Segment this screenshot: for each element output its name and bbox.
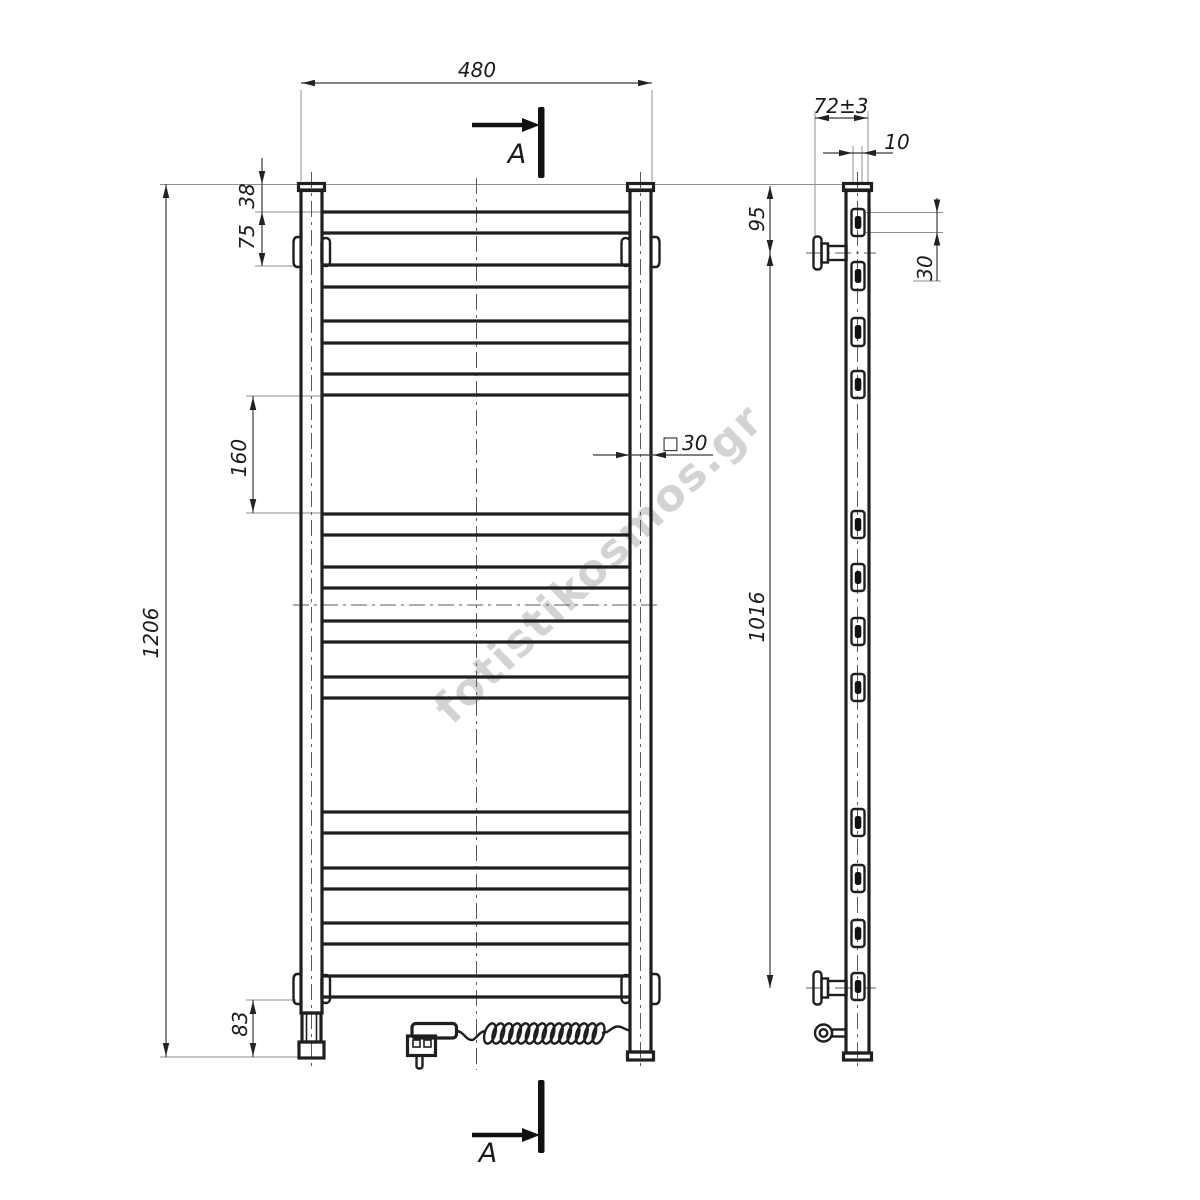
dim-95-label: 95: [747, 200, 767, 238]
section-label-bottom: A: [471, 1138, 505, 1168]
rung-slot-core: [855, 269, 862, 283]
front-view: [294, 184, 660, 1061]
dim-10-label: 10: [879, 131, 915, 153]
dim-1016-label: 1016: [747, 587, 767, 647]
dim-38-label: 38: [237, 176, 257, 216]
rung-slot-core: [855, 216, 862, 229]
dim-30-side-label: 30: [915, 249, 935, 287]
power-cord: [408, 1022, 632, 1069]
rung-slot-core: [855, 872, 862, 885]
rung-slot-core: [855, 571, 862, 584]
technical-drawing-page: fotistikosmos.gr: [0, 0, 1200, 1200]
cord-coil: [482, 1022, 607, 1045]
wall-bracket-side: [814, 237, 847, 1005]
section-bar-top: [538, 107, 545, 178]
dim-83-label: 83: [230, 1004, 250, 1044]
cord-tail: [602, 1027, 631, 1034]
rung-slot-core: [855, 980, 862, 993]
rung-slot-core: [855, 681, 862, 694]
side-view: [814, 184, 872, 1061]
dim-72-label: 72±3: [804, 95, 878, 117]
dim-160-label: 160: [229, 433, 249, 483]
dim-width-label: 480: [450, 59, 504, 81]
towel-rail-drawing: [0, 0, 1200, 1200]
bracket-cap: [652, 237, 660, 267]
dim-height-label: 1206: [140, 605, 162, 661]
rung-slot-core: [855, 518, 862, 531]
rung-slot-core: [855, 325, 862, 339]
dim-75-label: 75: [237, 217, 257, 257]
heating-element-side: [815, 1025, 846, 1042]
rung-slot-core: [855, 927, 862, 940]
square-symbol: □: [662, 433, 679, 454]
extension-lines: [160, 90, 943, 1057]
dim-square30-label: □ 30: [662, 432, 707, 454]
rung-slot-core: [855, 625, 862, 638]
dimension-lines: [166, 83, 937, 1057]
section-bar-bottom: [538, 1080, 545, 1153]
cord-lead: [456, 1031, 486, 1040]
plug-pin: [417, 1056, 423, 1069]
rung-sections-side: [852, 209, 865, 1000]
bracket-cap: [652, 974, 660, 1004]
square30-value: 30: [682, 431, 707, 455]
rung-slot-core: [855, 378, 862, 391]
rung-slot-core: [855, 816, 862, 829]
section-label-top: A: [500, 139, 534, 169]
